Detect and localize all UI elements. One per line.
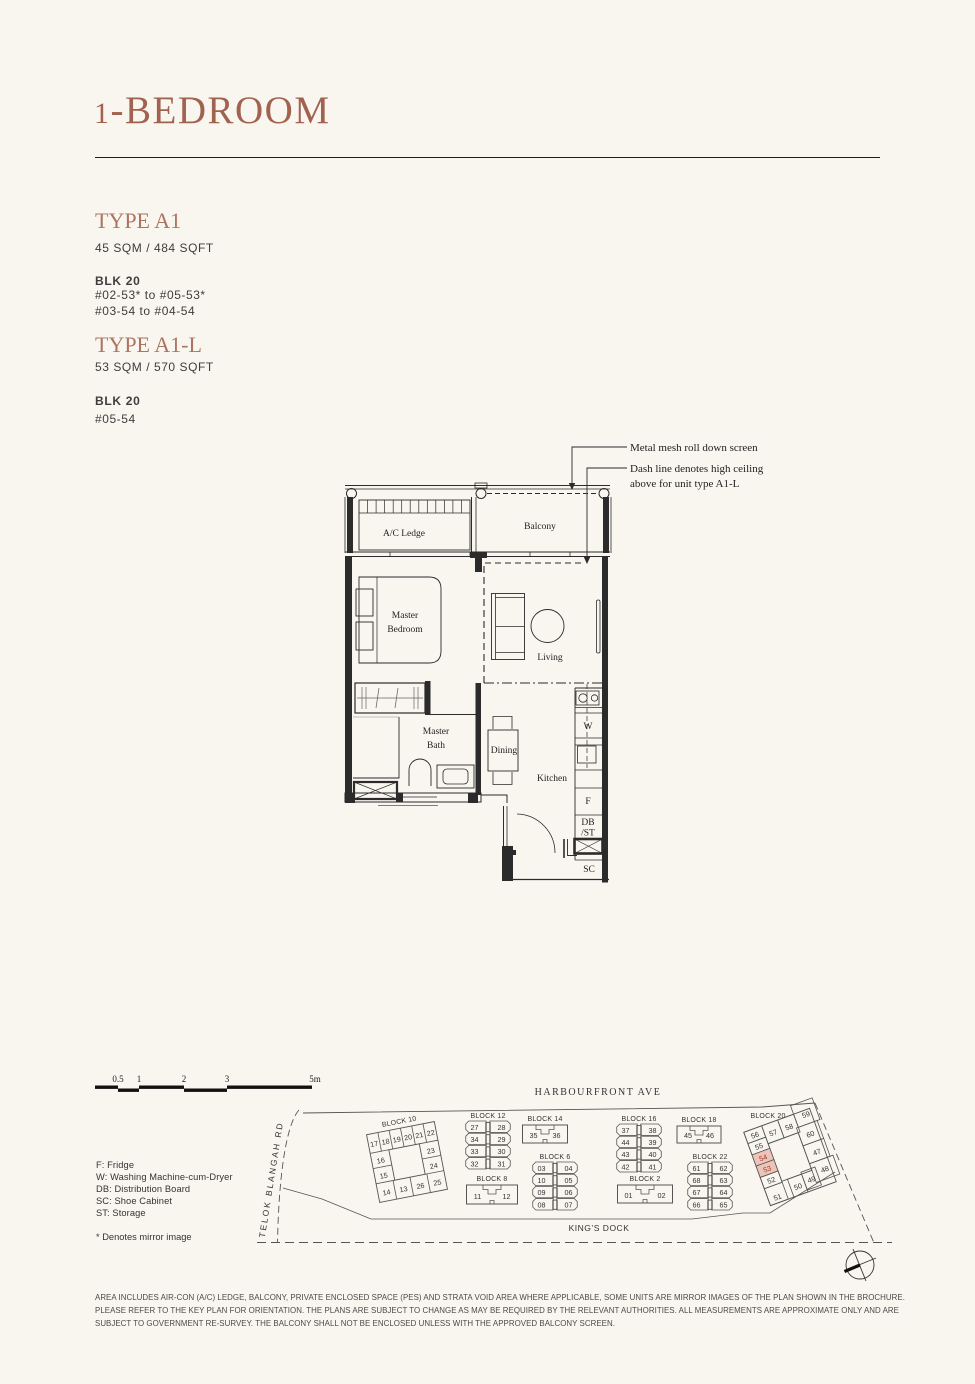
svg-text:45: 45 [684,1131,692,1140]
svg-text:40: 40 [649,1150,657,1159]
svg-text:19: 19 [392,1134,402,1144]
svg-text:39: 39 [649,1138,657,1147]
svg-text:41: 41 [649,1162,657,1171]
svg-text:W: W [584,722,593,732]
svg-text:03: 03 [538,1164,546,1173]
svg-text:59: 59 [801,1109,812,1120]
svg-text:14: 14 [382,1187,392,1197]
svg-text:Living: Living [537,653,563,663]
svg-text:BLOCK 8: BLOCK 8 [477,1176,508,1183]
svg-text:65: 65 [720,1200,728,1209]
svg-text:BLOCK 14: BLOCK 14 [527,1116,562,1123]
svg-text:31: 31 [498,1159,506,1168]
svg-text:0.5: 0.5 [112,1074,124,1084]
svg-text:49: 49 [806,1174,817,1185]
svg-text:17: 17 [369,1139,379,1149]
svg-text:44: 44 [622,1138,630,1147]
svg-text:61: 61 [693,1164,701,1173]
svg-text:BLOCK 2: BLOCK 2 [630,1176,661,1183]
svg-text:Master: Master [423,727,450,737]
svg-text:BLOCK 22: BLOCK 22 [692,1154,727,1161]
svg-text:A/C Ledge: A/C Ledge [383,529,425,539]
svg-text:F: F [585,797,590,807]
svg-text:HARBOURFRONT AVE: HARBOURFRONT AVE [535,1087,662,1098]
svg-text:47: 47 [812,1146,823,1157]
svg-text:Metal mesh roll down screen: Metal mesh roll down screen [630,442,758,454]
svg-text:67: 67 [693,1188,701,1197]
svg-text:58: 58 [784,1121,795,1132]
svg-text:Dining: Dining [491,746,518,756]
svg-text:46: 46 [706,1131,714,1140]
svg-text:11: 11 [474,1192,481,1201]
svg-text:16: 16 [376,1155,386,1165]
svg-text:BLOCK 16: BLOCK 16 [621,1116,656,1123]
svg-text:28: 28 [498,1123,506,1132]
svg-text:56: 56 [750,1130,761,1141]
svg-text:32: 32 [471,1159,479,1168]
svg-text:27: 27 [471,1123,479,1132]
svg-text:26: 26 [416,1181,426,1191]
svg-text:Dash line denotes high ceiling: Dash line denotes high ceiling [630,463,764,475]
svg-text:64: 64 [720,1188,728,1197]
svg-text:BLOCK 20: BLOCK 20 [750,1113,785,1120]
svg-text:62: 62 [720,1164,728,1173]
svg-text:SC: SC [583,865,595,875]
svg-text:22: 22 [426,1128,436,1138]
svg-text:18: 18 [381,1137,391,1147]
svg-text:12: 12 [503,1192,511,1201]
svg-text:29: 29 [498,1135,506,1144]
svg-text:1: 1 [137,1074,142,1084]
svg-text:38: 38 [649,1126,657,1135]
svg-text:35: 35 [530,1131,538,1140]
svg-text:DB: DB [581,818,594,828]
svg-text:BLOCK 12: BLOCK 12 [470,1113,505,1120]
svg-text:15: 15 [379,1171,389,1181]
svg-text:01: 01 [625,1191,633,1200]
svg-text:05: 05 [565,1176,573,1185]
svg-text:/ST: /ST [581,829,595,839]
svg-text:20: 20 [403,1132,413,1142]
svg-text:60: 60 [805,1129,816,1140]
svg-text:50: 50 [793,1181,804,1192]
svg-text:Balcony: Balcony [524,522,556,532]
svg-text:24: 24 [429,1161,439,1171]
svg-text:02: 02 [658,1191,666,1200]
svg-text:36: 36 [553,1131,561,1140]
svg-text:21: 21 [415,1130,425,1140]
svg-text:52: 52 [766,1175,777,1186]
svg-text:33: 33 [471,1147,479,1156]
svg-text:43: 43 [622,1150,630,1159]
svg-text:34: 34 [471,1135,479,1144]
svg-text:25: 25 [433,1177,443,1187]
svg-text:2: 2 [182,1074,187,1084]
svg-text:KING’S DOCK: KING’S DOCK [569,1223,630,1233]
svg-text:57: 57 [768,1127,779,1138]
svg-text:Bath: Bath [427,741,445,751]
svg-text:3: 3 [225,1074,230,1084]
svg-text:04: 04 [565,1164,573,1173]
svg-text:37: 37 [622,1126,630,1135]
svg-text:above for unit type A1-L: above for unit type A1-L [630,478,740,490]
svg-text:Bedroom: Bedroom [387,625,423,635]
svg-text:08: 08 [538,1200,546,1209]
svg-text:68: 68 [693,1176,701,1185]
svg-text:51: 51 [772,1192,783,1203]
svg-text:BLOCK 6: BLOCK 6 [540,1154,571,1161]
svg-text:Kitchen: Kitchen [537,774,567,784]
svg-text:23: 23 [426,1146,436,1156]
svg-text:06: 06 [565,1188,573,1197]
svg-text:55: 55 [754,1141,765,1152]
svg-text:07: 07 [565,1200,573,1209]
svg-text:10: 10 [538,1176,546,1185]
svg-text:BLOCK 18: BLOCK 18 [681,1117,716,1124]
svg-text:42: 42 [622,1162,630,1171]
svg-text:13: 13 [399,1184,409,1194]
svg-text:Master: Master [392,611,419,621]
svg-text:63: 63 [720,1176,728,1185]
svg-text:09: 09 [538,1188,546,1197]
svg-text:66: 66 [693,1200,701,1209]
svg-text:30: 30 [498,1147,506,1156]
svg-text:5m: 5m [309,1074,321,1084]
svg-text:48: 48 [820,1164,831,1175]
